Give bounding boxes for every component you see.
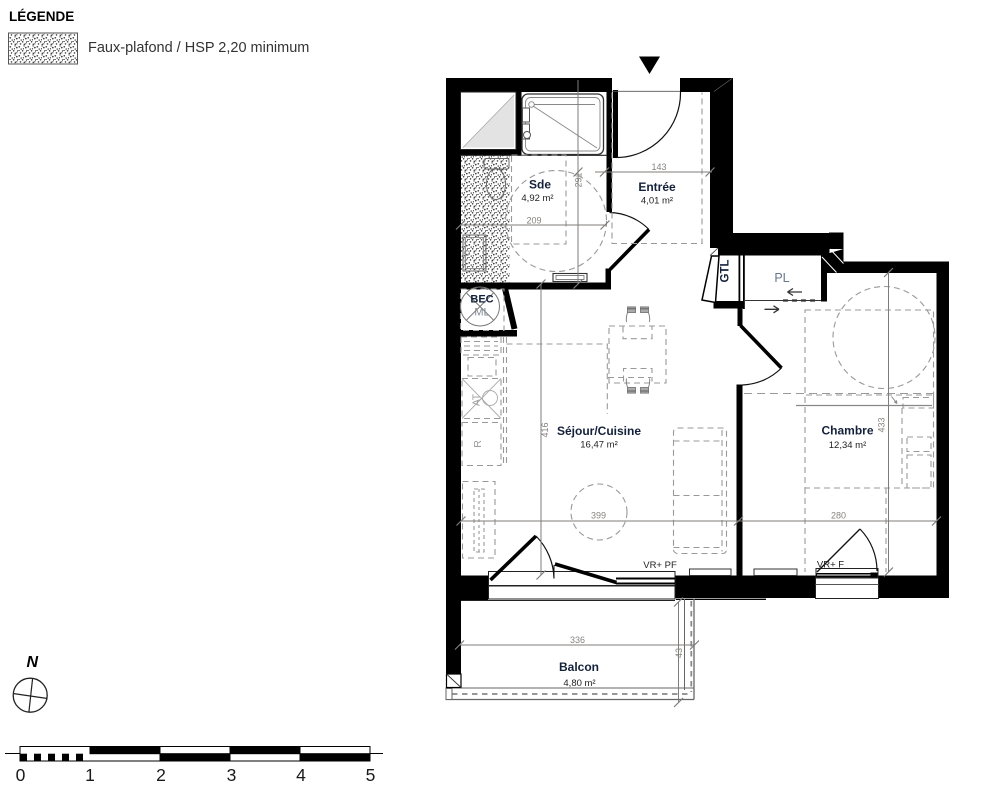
svg-text:Faux-plafond / HSP 2,20 minimu: Faux-plafond / HSP 2,20 minimum [88,40,309,56]
svg-text:LÉGENDE: LÉGENDE [9,9,74,24]
svg-text:336: 336 [570,635,585,645]
svg-text:1: 1 [85,765,95,785]
svg-text:VR+ F: VR+ F [817,560,844,571]
svg-text:4: 4 [296,765,306,785]
svg-text:12,34 m²: 12,34 m² [829,440,867,451]
svg-text:4,01 m²: 4,01 m² [641,196,673,207]
svg-text:Entrée: Entrée [638,180,676,194]
svg-text:BEC: BEC [470,294,493,306]
svg-text:Séjour/Cuisine: Séjour/Cuisine [557,424,641,438]
svg-text:4,80 m²: 4,80 m² [563,678,595,689]
svg-text:280: 280 [831,511,846,521]
svg-text:2: 2 [156,765,166,785]
svg-text:209: 209 [526,216,541,226]
svg-text:416: 416 [540,422,550,437]
svg-text:5: 5 [366,765,376,785]
svg-text:Chambre: Chambre [821,424,873,438]
svg-text:291: 291 [574,172,584,187]
svg-text:Sde: Sde [529,178,551,192]
svg-text:R: R [472,440,484,448]
svg-text:Balcon: Balcon [559,660,599,674]
svg-text:0: 0 [16,765,26,785]
svg-text:433: 433 [877,417,887,432]
svg-text:VR+ PF: VR+ PF [643,560,677,571]
svg-text:GTL: GTL [720,260,732,283]
svg-text:3: 3 [227,765,237,785]
svg-text:PL: PL [774,271,789,285]
svg-text:143: 143 [651,162,666,172]
svg-text:AT: AT [472,394,483,406]
svg-text:399: 399 [591,511,606,521]
svg-text:43: 43 [674,648,684,658]
svg-text:4,92 m²: 4,92 m² [521,193,553,204]
svg-text:16,47 m²: 16,47 m² [580,440,618,451]
svg-text:N: N [27,654,39,671]
svg-text:ML: ML [474,307,489,319]
